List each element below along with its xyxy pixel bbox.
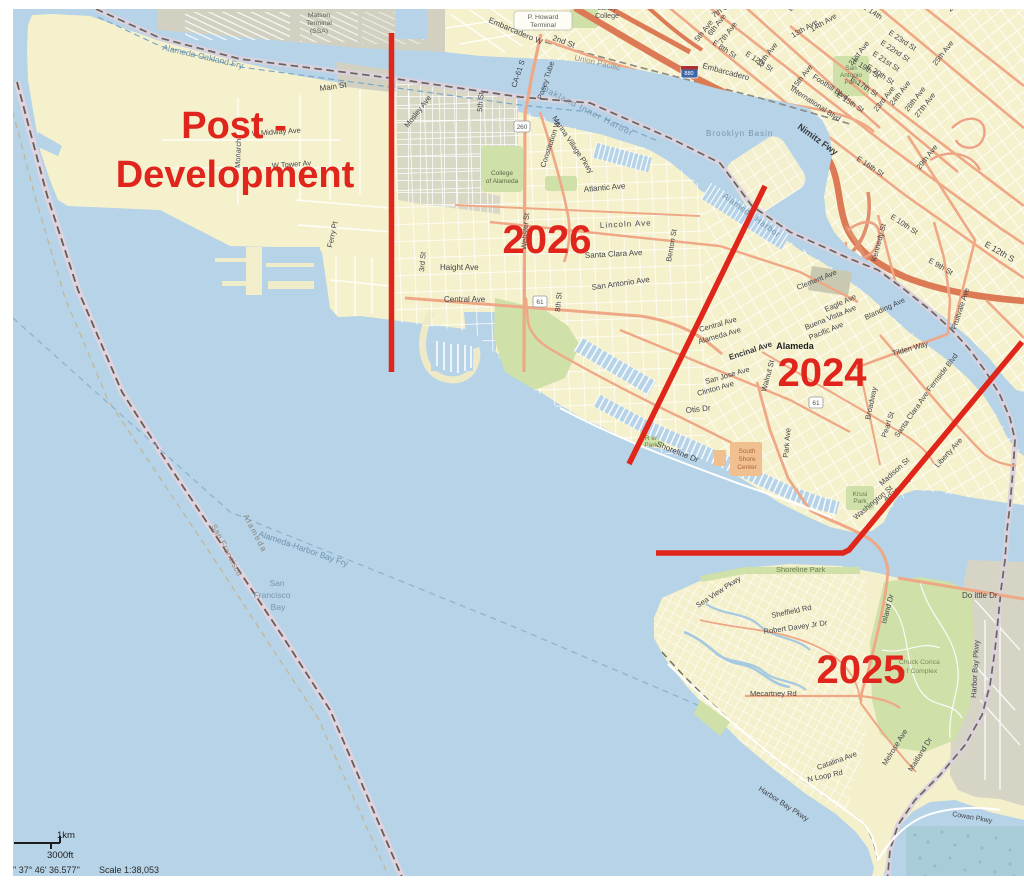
svg-text:Terminal: Terminal: [306, 20, 332, 27]
svg-text:Park: Park: [844, 79, 858, 86]
svg-text:Post -: Post -: [181, 105, 287, 147]
svg-text:2025: 2025: [817, 648, 906, 692]
svg-text:Central Ave: Central Ave: [444, 295, 486, 304]
svg-text:61: 61: [536, 299, 544, 306]
svg-text:of Alameda: of Alameda: [486, 178, 519, 185]
svg-text:Scale 1:38,053: Scale 1:38,053: [99, 865, 159, 875]
svg-text:San: San: [269, 578, 284, 588]
svg-text:Park: Park: [644, 442, 658, 449]
svg-text:(SSA): (SSA): [310, 28, 328, 35]
svg-text:Krusi: Krusi: [853, 491, 868, 498]
svg-text:Park: Park: [853, 498, 867, 505]
svg-text:Matson: Matson: [308, 12, 331, 19]
svg-text:2024: 2024: [778, 351, 868, 395]
svg-text:Center: Center: [737, 464, 757, 471]
svg-text:Brooklyn Basin: Brooklyn Basin: [706, 129, 773, 138]
svg-text:8th St: 8th St: [553, 291, 564, 312]
svg-text:Shore: Shore: [738, 456, 756, 463]
svg-text:College: College: [491, 170, 513, 177]
svg-text:o f Complex: o f Complex: [901, 668, 938, 675]
svg-text:R er: R er: [645, 435, 658, 442]
svg-text:Do ittle Dr: Do ittle Dr: [962, 591, 998, 600]
svg-text:Terminal: Terminal: [530, 22, 556, 29]
svg-text:South: South: [739, 448, 756, 455]
svg-text:Haight Ave: Haight Ave: [440, 263, 479, 272]
svg-text:" 37° 46' 36.577": " 37° 46' 36.577": [13, 865, 80, 875]
svg-text:Alameda: Alameda: [776, 341, 815, 351]
svg-text:61: 61: [812, 400, 820, 407]
svg-text:P. Howard: P. Howard: [528, 14, 559, 21]
svg-text:San: San: [845, 65, 857, 72]
svg-text:880: 880: [684, 71, 693, 77]
svg-text:Francisco: Francisco: [254, 590, 291, 600]
svg-text:Mecartney Rd: Mecartney Rd: [750, 689, 797, 698]
svg-text:College: College: [595, 13, 619, 20]
svg-text:Bay: Bay: [271, 602, 286, 612]
svg-text:1km: 1km: [57, 830, 75, 841]
svg-text:Antonio: Antonio: [840, 72, 862, 79]
svg-text:3000ft: 3000ft: [47, 850, 74, 861]
svg-text:3rd St: 3rd St: [417, 251, 428, 273]
svg-text:Shoreline Park: Shoreline Park: [776, 565, 825, 574]
svg-text:Development: Development: [116, 154, 355, 196]
svg-text:2026: 2026: [503, 218, 592, 262]
svg-text:5th St: 5th St: [475, 91, 486, 112]
svg-text:260: 260: [517, 124, 528, 131]
